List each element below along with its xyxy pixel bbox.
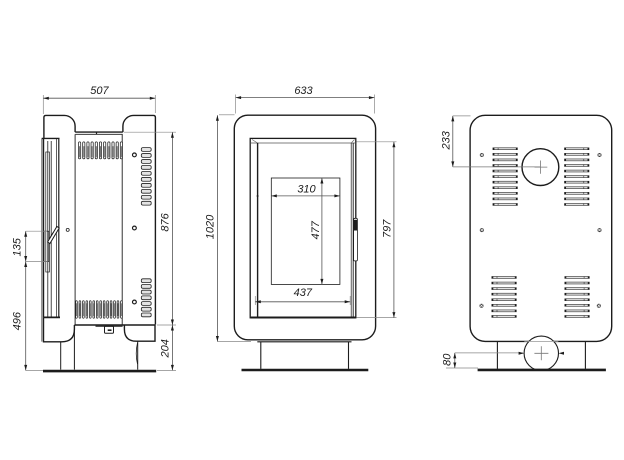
svg-text:507: 507: [90, 85, 109, 97]
svg-text:633: 633: [294, 85, 313, 97]
svg-text:437: 437: [294, 287, 313, 299]
svg-text:80: 80: [442, 353, 454, 366]
svg-text:233: 233: [440, 130, 452, 150]
svg-text:135: 135: [12, 237, 24, 256]
svg-text:204: 204: [159, 339, 171, 358]
svg-text:477: 477: [310, 220, 322, 239]
svg-text:496: 496: [12, 311, 24, 330]
svg-text:876: 876: [159, 212, 171, 231]
svg-text:1020: 1020: [204, 214, 216, 239]
svg-text:310: 310: [297, 183, 316, 195]
svg-text:797: 797: [382, 219, 394, 238]
